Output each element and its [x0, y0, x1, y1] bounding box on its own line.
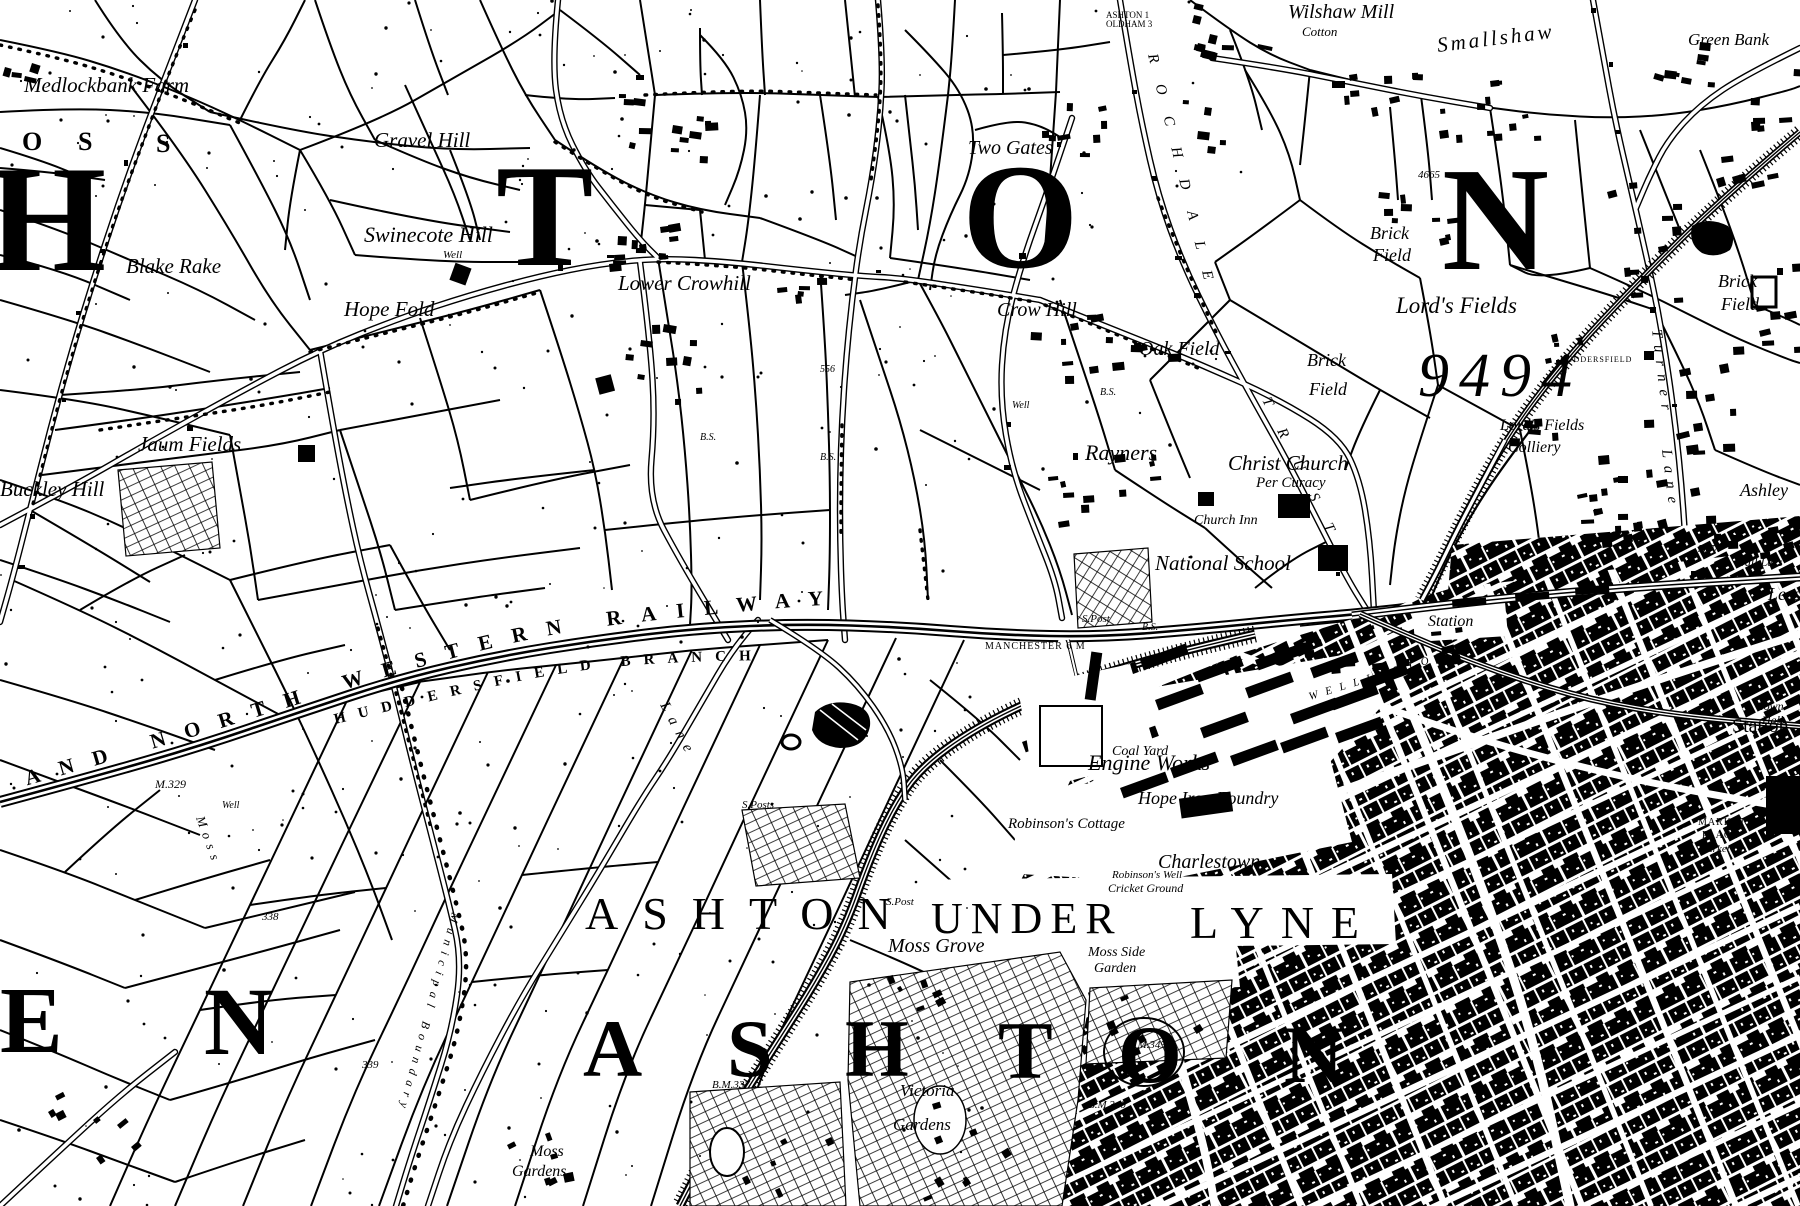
svg-text:OLDHAM 3: OLDHAM 3 — [1106, 19, 1153, 29]
svg-text:B.M.345: B.M.345 — [1128, 1039, 1166, 1051]
svg-text:B.M.340: B.M.340 — [1088, 1099, 1126, 1111]
svg-text:Field: Field — [1308, 379, 1348, 399]
svg-text:Gardens: Gardens — [512, 1163, 567, 1180]
svg-text:Town: Town — [1758, 699, 1784, 713]
svg-text:LYNE: LYNE — [1190, 897, 1376, 948]
svg-text:Robinson's Cottage: Robinson's Cottage — [1007, 816, 1125, 832]
svg-text:S: S — [78, 127, 92, 156]
svg-text:Lees: Lees — [1767, 584, 1800, 604]
svg-text:Buckley Hill: Buckley Hill — [0, 477, 105, 501]
svg-text:MARKET: MARKET — [1698, 817, 1746, 828]
svg-text:O: O — [22, 127, 42, 156]
svg-text:Well: Well — [443, 249, 462, 261]
svg-text:HUDDERSFIELD: HUDDERSFIELD — [1560, 355, 1632, 364]
svg-text:4665: 4665 — [1418, 169, 1441, 181]
svg-text:S: S — [156, 129, 170, 158]
svg-text:Field: Field — [1720, 294, 1760, 314]
svg-text:Gravel Hill: Gravel Hill — [374, 128, 470, 152]
svg-text:N: N — [204, 968, 273, 1075]
svg-text:Blake Rake: Blake Rake — [126, 254, 221, 278]
svg-text:N: N — [1442, 138, 1549, 302]
svg-text:Ashley: Ashley — [1739, 480, 1788, 500]
svg-text:Wilshaw Mill: Wilshaw Mill — [1288, 1, 1395, 23]
svg-text:N: N — [1284, 1009, 1343, 1100]
svg-text:T: T — [998, 1005, 1053, 1096]
svg-text:M.329: M.329 — [154, 777, 186, 791]
svg-text:Crow Hill: Crow Hill — [997, 299, 1077, 321]
svg-text:MANCHESTER 6 M: MANCHESTER 6 M — [985, 641, 1086, 652]
svg-text:Swinecote Hill: Swinecote Hill — [364, 222, 493, 247]
svg-text:Moss Side: Moss Side — [1087, 945, 1145, 960]
svg-text:Market Ho: Market Ho — [1697, 843, 1746, 855]
svg-text:Gardens: Gardens — [893, 1115, 951, 1134]
svg-text:Well: Well — [1012, 400, 1030, 411]
svg-text:Brick: Brick — [1370, 223, 1410, 243]
svg-text:9494: 9494 — [1418, 342, 1582, 410]
svg-text:E: E — [0, 969, 63, 1073]
svg-text:Lord's Fields: Lord's Fields — [1499, 417, 1584, 434]
svg-text:B.S.: B.S. — [1142, 622, 1158, 633]
svg-text:Cricket Ground: Cricket Ground — [1108, 881, 1184, 895]
svg-text:339: 339 — [361, 1059, 379, 1071]
svg-text:Brick: Brick — [1307, 350, 1347, 370]
svg-text:Well: Well — [222, 800, 240, 811]
svg-text:ASHTON: ASHTON — [585, 888, 915, 939]
svg-text:Hall: Hall — [1761, 713, 1784, 727]
svg-text:PLACE: PLACE — [1702, 830, 1739, 841]
svg-text:367/7: 367/7 — [1697, 543, 1724, 555]
svg-text:Wall Lees: Wall Lees — [1736, 555, 1783, 569]
svg-text:Hope Iron Foundry: Hope Iron Foundry — [1137, 788, 1278, 808]
svg-text:Cotton: Cotton — [1302, 24, 1337, 39]
svg-text:Station: Station — [1428, 613, 1473, 630]
svg-text:Moss: Moss — [529, 1143, 564, 1160]
svg-text:B.S.: B.S. — [700, 432, 716, 443]
svg-text:Medlockbank Farm: Medlockbank Farm — [23, 73, 189, 97]
svg-text:A: A — [583, 1003, 642, 1094]
svg-text:Green Bank: Green Bank — [1688, 30, 1769, 49]
svg-text:B.S.: B.S. — [820, 452, 836, 463]
svg-text:Lord's Fields: Lord's Fields — [1395, 293, 1517, 318]
svg-text:S.Post: S.Post — [886, 896, 915, 908]
svg-text:338: 338 — [261, 911, 279, 923]
svg-text:S.Posts: S.Posts — [742, 799, 774, 811]
svg-text:Victoria: Victoria — [900, 1081, 954, 1100]
svg-text:Robinson's Well: Robinson's Well — [1111, 869, 1182, 881]
svg-text:T: T — [496, 135, 593, 297]
svg-text:Colliery: Colliery — [1508, 439, 1561, 456]
svg-text:Garden: Garden — [1094, 961, 1136, 976]
svg-text:Lower Crowhill: Lower Crowhill — [617, 271, 751, 295]
svg-text:Oak Field: Oak Field — [1139, 338, 1221, 360]
svg-text:Two Gates: Two Gates — [968, 137, 1053, 159]
svg-text:Jaum Fields: Jaum Fields — [138, 432, 241, 456]
svg-text:556: 556 — [820, 364, 835, 375]
svg-text:Coal Yard: Coal Yard — [1112, 744, 1169, 759]
svg-text:Field: Field — [1372, 245, 1412, 265]
svg-text:Rayners: Rayners — [1084, 440, 1157, 465]
svg-text:B.S.: B.S. — [1100, 387, 1116, 398]
svg-text:Brick: Brick — [1718, 271, 1758, 291]
svg-text:Church Inn: Church Inn — [1194, 513, 1258, 528]
svg-text:Hope Fold: Hope Fold — [343, 297, 435, 321]
svg-text:H: H — [0, 135, 106, 303]
svg-text:S.Post: S.Post — [1082, 613, 1111, 625]
svg-text:Moss Grove: Moss Grove — [887, 935, 985, 957]
svg-text:National School: National School — [1154, 551, 1291, 575]
svg-text:B.M.337: B.M.337 — [712, 1079, 750, 1091]
